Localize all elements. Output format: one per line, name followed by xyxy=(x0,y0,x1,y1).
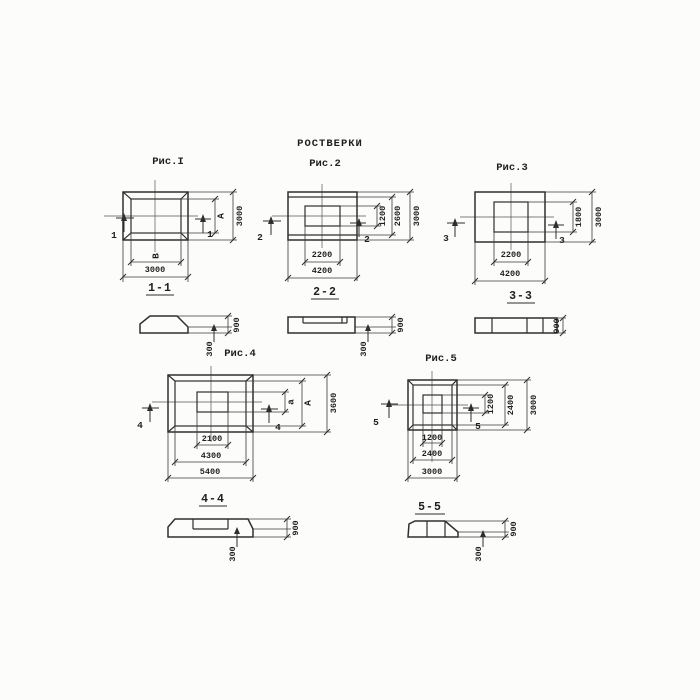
dim-s2-height: 900 xyxy=(396,317,406,332)
figure-5-plan: Рис.5 1200 2400 3000 1200 2400 3000 5 xyxy=(373,353,539,514)
section-3-3-outline xyxy=(475,318,557,333)
fig4-outline xyxy=(168,375,253,432)
dim-fig3-right-outer: 3000 xyxy=(594,207,604,227)
cut-number-1-left: 1 xyxy=(111,230,117,241)
dim-fig5-right-outer: 3000 xyxy=(529,395,539,415)
dim-fig3-right-inner: 1800 xyxy=(574,207,584,227)
dim-fig3-bottom-outer: 4200 xyxy=(500,269,520,279)
dim-s4-height: 900 xyxy=(291,520,301,535)
section-5-5-title: 5-5 xyxy=(418,501,442,514)
section-2-2-title: 2-2 xyxy=(313,286,337,299)
figure-4-plan: Рис.4 а А 3600 2100 4300 5400 4 xyxy=(137,348,339,506)
section-3-3-title: 3-3 xyxy=(509,290,533,303)
cut-number-3-right: 3 xyxy=(559,235,565,246)
figure-1-label: Рис.I xyxy=(152,156,184,168)
figure-2-plan: Рис.2 1200 2600 3000 2200 4200 2 xyxy=(257,158,422,299)
dim-s1-height: 900 xyxy=(232,317,242,332)
cut-mark-1-right: 1 xyxy=(195,214,213,240)
dim-s4-edge: 300 xyxy=(228,546,238,561)
dim-fig1-right-outer: 3000 xyxy=(235,206,245,226)
cut-number-4-right: 4 xyxy=(275,422,281,433)
drawing-sheet: РОСТВЕРКИ Рис.I А 3000 В 3000 1 xyxy=(0,0,700,700)
dim-s3-height: 900 xyxy=(552,318,562,333)
dim-fig5-right-mid: 2400 xyxy=(506,395,516,415)
dim-fig1-right-inner: А xyxy=(216,213,227,219)
cut-number-2-left: 2 xyxy=(257,232,263,243)
dim-fig4-bottom-inner: 2100 xyxy=(202,434,222,444)
cut-number-5-left: 5 xyxy=(373,417,379,428)
cut-number-3-left: 3 xyxy=(443,233,449,244)
cut-mark-4-left: 4 xyxy=(137,403,159,431)
cut-mark-4-right: 4 xyxy=(261,404,281,433)
dim-s5-height: 900 xyxy=(509,521,519,536)
cut-mark-5-left: 5 xyxy=(373,399,398,428)
dim-fig4-right-inner: а xyxy=(286,399,297,405)
dim-fig3-bottom-inner: 2200 xyxy=(501,250,521,260)
cut-number-5-right: 5 xyxy=(475,421,481,432)
dim-fig4-right-outer: 3600 xyxy=(329,393,339,413)
figure-3-label: Рис.3 xyxy=(496,162,528,174)
cut-mark-3-left: 3 xyxy=(443,218,465,244)
section-5-5-outline xyxy=(408,521,458,537)
cut-number-2-right: 2 xyxy=(364,234,370,245)
dim-fig4-right-mid: А xyxy=(303,400,314,406)
dim-fig2-right-outer: 3000 xyxy=(412,206,422,226)
dim-fig5-bottom-outer: 3000 xyxy=(422,467,442,477)
cut-number-4-left: 4 xyxy=(137,420,143,431)
figure-4-label: Рис.4 xyxy=(224,348,256,360)
section-1-1-title: 1-1 xyxy=(148,282,172,295)
cut-mark-5-right: 5 xyxy=(463,403,481,432)
dim-fig5-bottom-mid: 2400 xyxy=(422,449,442,459)
section-4-4-profile: 900 300 xyxy=(168,516,301,562)
section-4-4-outline xyxy=(168,519,253,537)
dim-fig1-bottom-inner: В xyxy=(151,253,162,259)
dim-s5-edge: 300 xyxy=(474,546,484,561)
dim-s1-edge: 300 xyxy=(205,341,215,356)
figure-2-label: Рис.2 xyxy=(309,158,341,170)
dim-s2-edge: 300 xyxy=(359,341,369,356)
dim-fig2-bottom-inner: 2200 xyxy=(312,250,332,260)
fig5-opening xyxy=(423,395,442,413)
dim-fig2-bottom-outer: 4200 xyxy=(312,266,332,276)
section-3-3-profile: 900 xyxy=(475,315,566,336)
section-5-5-profile: 900 300 xyxy=(408,518,519,562)
dim-fig4-bottom-mid: 4300 xyxy=(201,451,221,461)
figure-5-label: Рис.5 xyxy=(425,353,457,365)
section-4-4-title: 4-4 xyxy=(201,493,225,506)
section-2-2-outline xyxy=(288,317,355,333)
cut-mark-2-left: 2 xyxy=(257,216,281,243)
dim-fig2-right-mid: 2600 xyxy=(393,206,403,226)
drawing-canvas: РОСТВЕРКИ Рис.I А 3000 В 3000 1 xyxy=(0,0,700,700)
figure-1-plan: Рис.I А 3000 В 3000 1 1 1-1 xyxy=(104,156,245,295)
sheet-title: РОСТВЕРКИ xyxy=(297,138,363,150)
fig4-frame xyxy=(175,381,246,426)
figure-3-plan: Рис.3 1800 3000 2200 4200 3 3 3 xyxy=(443,162,604,303)
section-2-2-profile: 900 300 xyxy=(288,314,406,357)
cut-mark-2-right: 2 xyxy=(350,218,370,245)
cut-number-1-right: 1 xyxy=(207,229,213,240)
section-1-1-outline xyxy=(140,316,188,333)
dim-fig4-bottom-outer: 5400 xyxy=(200,467,220,477)
dim-fig1-bottom-outer: 3000 xyxy=(145,265,165,275)
